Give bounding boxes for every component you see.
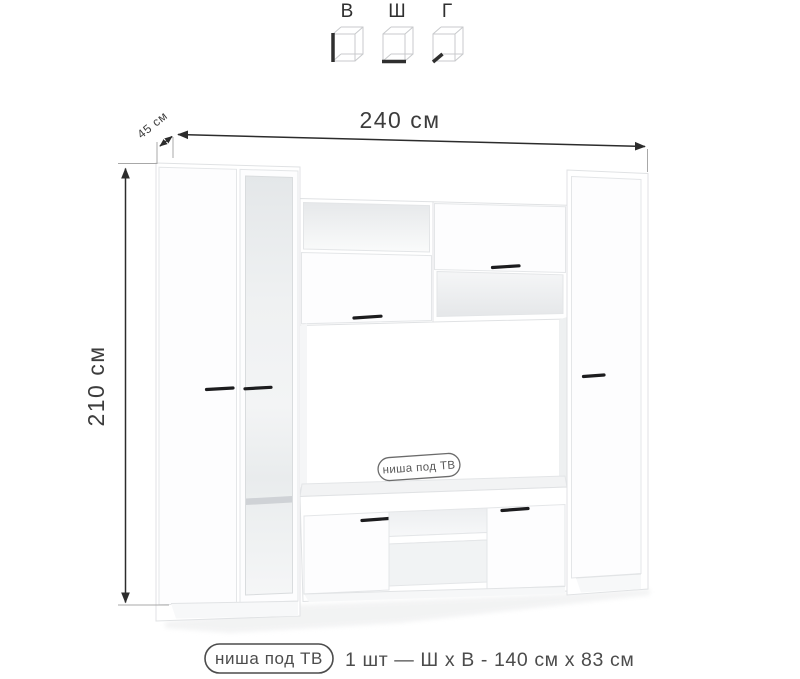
dimension-legend: В Ш Г [333, 1, 463, 62]
tv-stand-lower-compartment [389, 540, 487, 586]
bridge-left-open-niche [304, 203, 430, 253]
legend-depth-label: Г [442, 1, 452, 22]
width-dimension-arrow [178, 135, 645, 147]
caption-spec-text: 1 шт — Ш х В - 140 см х 83 см [345, 649, 634, 671]
cube-height-edge-icon [333, 27, 363, 62]
right-cabinet-door [572, 177, 642, 579]
width-dimension-label: 240 см [359, 107, 440, 133]
product-dimension-diagram: В Ш Г [0, 0, 800, 679]
diagram-canvas: В Ш Г [0, 0, 800, 679]
left-cabinet-block [156, 163, 300, 621]
tv-stand-left-handle [362, 519, 389, 521]
tv-stand-right-door [487, 505, 565, 590]
bridge-left-flap-door [302, 253, 432, 324]
tv-stand [300, 476, 567, 602]
glass-door-handle [245, 387, 271, 389]
legend-height-label: В [341, 1, 354, 22]
cube-width-edge-icon [382, 27, 413, 62]
caption-badge-label: ниша под ТВ [215, 649, 323, 668]
left-cabinet-door [159, 167, 237, 605]
bridge-right-flap-door [435, 204, 566, 273]
bridge-right-open-niche [437, 272, 563, 317]
left-door-handle [207, 388, 234, 390]
tv-stand-upper-compartment [389, 508, 487, 537]
glass-door-panel [246, 176, 293, 595]
left-cabinet-plinth [171, 601, 298, 618]
tv-niche-right-wall [559, 317, 567, 490]
height-dimension-label: 210 см [83, 345, 109, 426]
tv-niche-badge: ниша под ТВ [377, 453, 460, 482]
caption-row: ниша под ТВ 1 шт — Ш х В - 140 см х 83 с… [205, 644, 634, 673]
top-bridge-unit [300, 199, 567, 326]
cube-depth-edge-icon [433, 27, 463, 62]
bridge-right-handle [493, 266, 520, 268]
depth-dimension-arrow [160, 137, 172, 147]
bridge-left-handle [354, 316, 381, 318]
right-cabinet-handle [584, 375, 605, 377]
right-cabinet [567, 170, 648, 595]
legend-width-label: Ш [388, 1, 405, 22]
tv-stand-left-door [304, 512, 389, 594]
depth-dimension-label: 45 см [135, 108, 171, 141]
tv-stand-right-handle [502, 509, 528, 511]
tv-niche-left-wall [300, 324, 307, 488]
